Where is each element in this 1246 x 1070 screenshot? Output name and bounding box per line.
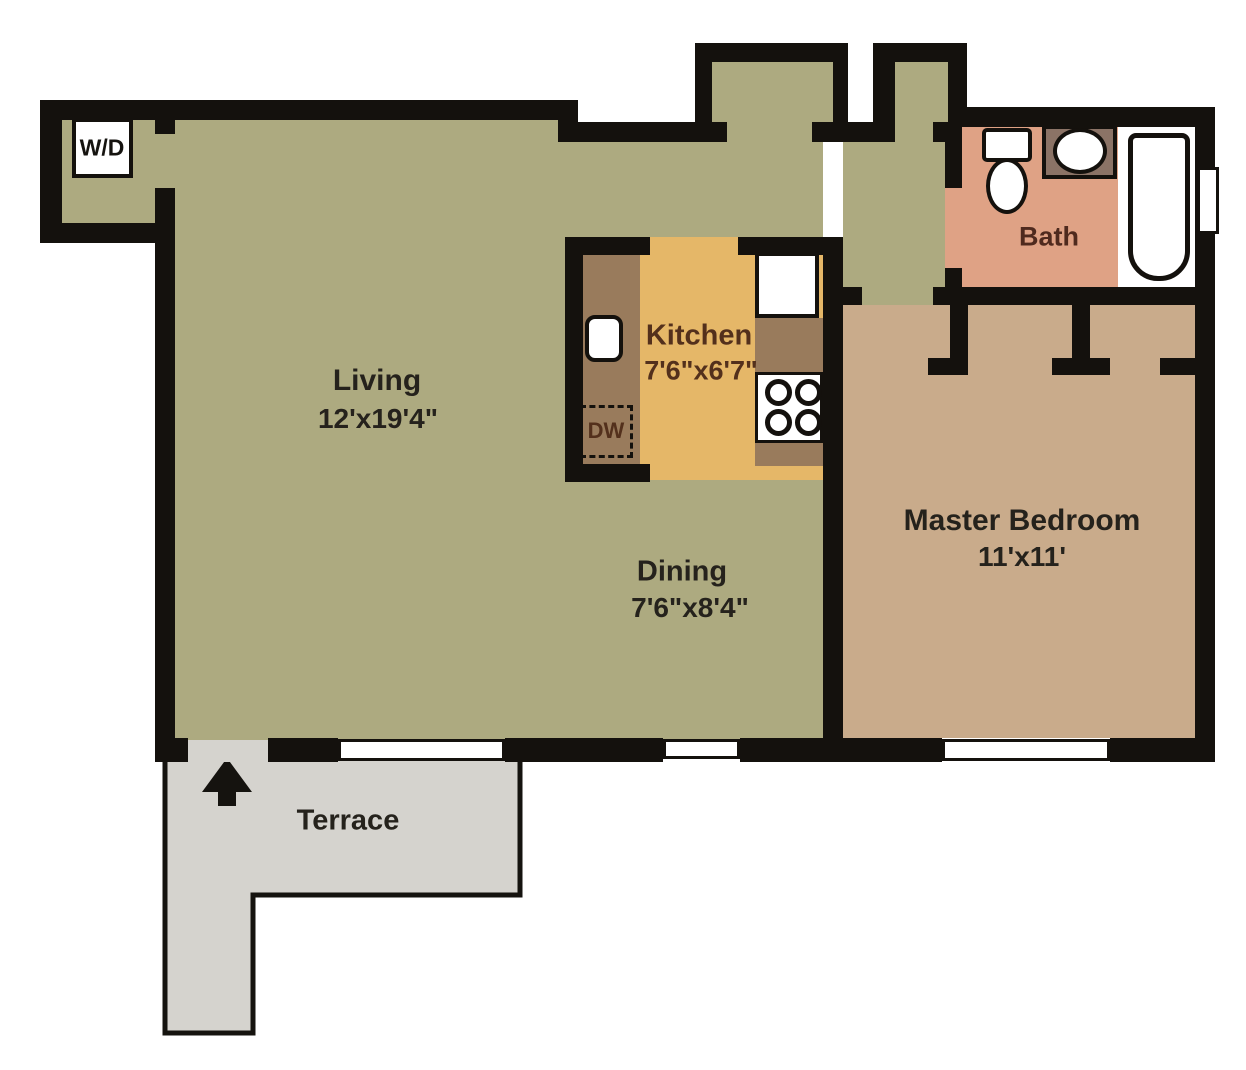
wall-segment bbox=[1072, 305, 1090, 363]
wall-segment bbox=[948, 107, 1215, 127]
master-bedroom-label: Master Bedroom bbox=[904, 504, 1141, 538]
wall-segment bbox=[565, 464, 650, 482]
wall-segment bbox=[1160, 358, 1197, 375]
wall-segment bbox=[155, 243, 175, 762]
wall-segment bbox=[565, 237, 583, 482]
terrace-outline bbox=[160, 750, 525, 1040]
floor-plan: Living 12'x19'4" Kitchen 7'6"x6'7" Dinin… bbox=[0, 0, 1246, 1070]
wall-segment bbox=[945, 122, 962, 188]
toilet-bowl bbox=[986, 158, 1028, 214]
wall-segment bbox=[155, 188, 175, 243]
dishwasher-label: DW bbox=[588, 418, 625, 444]
bathtub bbox=[1128, 133, 1190, 281]
dining-room-dims: 7'6"x8'4" bbox=[631, 592, 749, 624]
burner-icon bbox=[765, 379, 792, 406]
wall-segment bbox=[933, 287, 1198, 305]
wall-segment bbox=[873, 62, 895, 122]
dining-room-label: Dining bbox=[637, 556, 727, 589]
wall-segment bbox=[833, 43, 848, 122]
toilet-tank bbox=[982, 128, 1032, 162]
window bbox=[942, 739, 1110, 761]
wall-segment bbox=[558, 120, 578, 142]
window bbox=[663, 739, 740, 759]
burner-icon bbox=[765, 409, 792, 436]
window bbox=[338, 739, 505, 761]
wall-segment bbox=[268, 738, 338, 762]
wall-segment bbox=[40, 100, 578, 120]
bath-doorway-floor bbox=[945, 188, 962, 268]
wall-segment bbox=[695, 43, 848, 62]
washer-dryer-label: W/D bbox=[80, 135, 125, 162]
hallway-floor bbox=[565, 142, 823, 237]
wall-segment bbox=[712, 122, 727, 142]
window bbox=[1197, 167, 1219, 234]
wall-segment bbox=[812, 122, 895, 142]
refrigerator bbox=[755, 252, 819, 318]
terrace-label: Terrace bbox=[297, 805, 400, 838]
master-bedroom-dims: 11'x11' bbox=[978, 541, 1066, 573]
wall-segment bbox=[740, 738, 942, 762]
kitchen-counter-right-upper bbox=[755, 318, 823, 372]
kitchen-sink bbox=[585, 315, 623, 362]
vanity-sink bbox=[1053, 128, 1107, 174]
kitchen-dims: 7'6"x6'7" bbox=[644, 356, 758, 387]
wall-segment bbox=[950, 305, 968, 365]
kitchen-label: Kitchen bbox=[646, 320, 752, 353]
bath-label: Bath bbox=[1019, 222, 1079, 253]
burner-icon bbox=[795, 379, 822, 406]
wall-segment bbox=[928, 358, 968, 375]
wall-segment bbox=[155, 738, 188, 762]
kitchen-counter-right-lower bbox=[755, 443, 823, 466]
wall-segment bbox=[155, 120, 175, 134]
wall-segment bbox=[505, 738, 663, 762]
wall-segment bbox=[578, 122, 695, 142]
wall-segment bbox=[823, 237, 843, 762]
burner-icon bbox=[795, 409, 822, 436]
stove bbox=[755, 372, 823, 443]
hall-to-bedroom-floor bbox=[843, 138, 945, 305]
wall-segment bbox=[1110, 738, 1215, 762]
wall-segment bbox=[565, 237, 650, 255]
wall-segment bbox=[1052, 358, 1110, 375]
kitchen-doorway-floor bbox=[650, 237, 738, 255]
living-room-label: Living bbox=[333, 364, 421, 398]
terrace-door-opening bbox=[188, 740, 268, 762]
living-room-dims: 12'x19'4" bbox=[318, 403, 438, 435]
wall-segment bbox=[40, 100, 62, 243]
